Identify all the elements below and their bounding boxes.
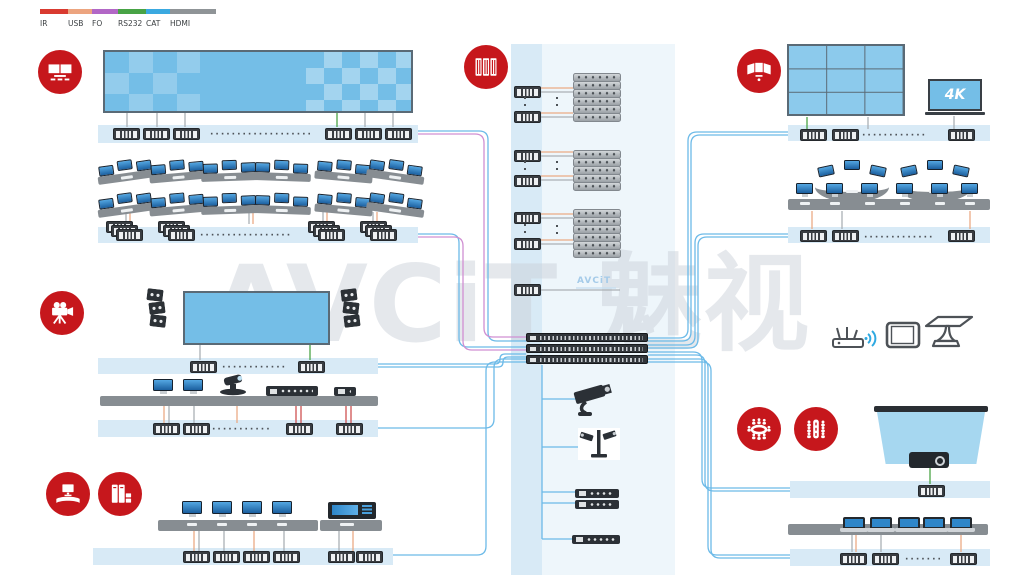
encoder-box (213, 551, 240, 563)
encoder-box (800, 230, 827, 242)
monitor (826, 183, 843, 200)
encoder-box (514, 212, 541, 224)
repeat-ellipsis: ············ (222, 363, 294, 373)
repeat-vdots (524, 161, 526, 173)
repeat-ellipsis: ············· (864, 233, 942, 243)
video-camera-icon (48, 299, 76, 327)
laptop (920, 517, 948, 534)
encoder-box (800, 129, 827, 141)
speaker-box (146, 288, 163, 302)
encoder-box (356, 551, 383, 563)
laptop (947, 517, 975, 534)
repeat-vdots (556, 225, 558, 237)
legend-label: CAT (146, 19, 170, 28)
legend-swatch (146, 9, 170, 14)
control-console (328, 502, 376, 519)
projection-screen-bar (874, 406, 988, 412)
tablet-icon (884, 320, 922, 354)
speaker-box (343, 314, 360, 328)
speaker-box (148, 301, 165, 315)
matrix-switcher (526, 355, 648, 364)
wire (393, 362, 526, 555)
monitor (117, 159, 133, 171)
encoder-box (286, 423, 313, 435)
legend-swatch (92, 9, 118, 14)
console-segment (150, 158, 206, 185)
operator-desk-icon (54, 480, 82, 508)
diagram-canvas: IRUSBFORS232CATHDMI AVCiT 魅视 AVCiT 4K (0, 0, 1025, 576)
curved-video-wall-badge (737, 49, 781, 93)
encoder-box (948, 129, 975, 141)
encoder-box (840, 553, 867, 565)
desk-chip (224, 208, 236, 211)
monitor (293, 163, 308, 174)
encoder-box (336, 423, 363, 435)
presentation-screen (183, 291, 330, 345)
monitor (293, 196, 308, 207)
legend-item: USB (68, 9, 92, 28)
legend-label: USB (68, 19, 92, 28)
console-segment (98, 189, 155, 218)
pole-camera-icon (578, 428, 620, 460)
monitor (117, 192, 133, 204)
operator-desk-badge (46, 472, 90, 516)
console-segment (255, 192, 310, 216)
monitor (961, 183, 978, 200)
repeat-ellipsis: ············ (862, 131, 934, 141)
console-segment (316, 191, 372, 218)
conference-table-badge (737, 407, 781, 451)
monitor (222, 160, 237, 171)
conference-host (266, 386, 318, 396)
encoder-box (173, 128, 200, 140)
encoder-stack-box (116, 229, 143, 241)
repeat-vdots (524, 224, 526, 236)
server-unit (573, 249, 621, 258)
encoder-box (832, 230, 859, 242)
legend-swatch (68, 9, 92, 14)
desk (788, 199, 990, 210)
video-recorder (575, 489, 619, 498)
console-segment (203, 192, 258, 216)
tv-4k-stand (925, 112, 985, 115)
monitor (336, 159, 352, 170)
video-wall-large (103, 50, 413, 113)
meeting-table-badge (794, 407, 838, 451)
wifi-router-icon (830, 324, 878, 356)
legend-label: FO (92, 19, 118, 28)
console-segment (203, 159, 258, 183)
repeat-ellipsis: ··················· (210, 130, 324, 140)
encoder-box (325, 128, 352, 140)
legend: IRUSBFORS232CATHDMI (40, 9, 216, 28)
cctv-camera-icon (570, 378, 624, 422)
tv-4k: 4K (928, 79, 982, 111)
video-recorder (575, 500, 619, 509)
encoder-box (143, 128, 170, 140)
projector-lens-icon (935, 456, 945, 466)
legend-label: RS232 (118, 19, 146, 28)
repeat-vdots (524, 97, 526, 109)
speaker-box (342, 301, 359, 315)
legend-item: RS232 (118, 9, 146, 28)
monitor (931, 183, 948, 200)
encoder-box (183, 551, 210, 563)
encoder-band (790, 481, 990, 498)
matrix-switcher (526, 344, 648, 353)
encoder-box (385, 128, 412, 140)
monitor (169, 192, 185, 203)
server-unit (573, 113, 621, 122)
encoder-box (514, 150, 541, 162)
encoder-box (190, 361, 217, 373)
legend-swatch (170, 9, 216, 14)
encoder-stack-box (168, 229, 195, 241)
legend-item: CAT (146, 9, 170, 28)
speaker-box (340, 288, 357, 302)
laptop (895, 517, 923, 534)
console-segment (368, 156, 425, 185)
encoder-box (328, 551, 355, 563)
video-wall-pattern-right (306, 52, 411, 111)
encoder-stack-box (370, 229, 397, 241)
legend-label: HDMI (170, 19, 216, 28)
monitor (796, 183, 813, 200)
encoder-box (153, 423, 180, 435)
repeat-vdots (556, 97, 558, 109)
monitor (927, 160, 943, 170)
encoder-box (514, 111, 541, 123)
network-switch (572, 535, 620, 544)
monitor (388, 159, 404, 171)
legend-item: HDMI (170, 9, 216, 28)
monitor (242, 501, 262, 520)
tv-4k-label: 4K (945, 87, 966, 103)
encoder-box (948, 230, 975, 242)
pc-towers-icon (106, 480, 134, 508)
console-segment (150, 191, 206, 218)
video-wall-3x3 (787, 44, 905, 116)
desk-chip (846, 190, 858, 193)
server-racks-badge (464, 45, 508, 89)
console-segment (255, 159, 310, 183)
legend-item: FO (92, 9, 118, 28)
desk-chip (277, 523, 287, 526)
projector (909, 452, 949, 468)
monitor (844, 160, 860, 170)
monitor (169, 159, 185, 170)
legend-swatch (118, 9, 146, 14)
monitor (203, 196, 218, 207)
desk-chip (935, 202, 945, 205)
device-shelf (100, 396, 378, 406)
monitor (255, 195, 270, 206)
matrix-switcher (526, 333, 648, 342)
encoder-box (298, 361, 325, 373)
console-segment (98, 156, 155, 185)
desk-chip (865, 202, 875, 205)
desk-chip (800, 202, 810, 205)
monitor (183, 379, 203, 397)
legend-swatch (40, 9, 68, 14)
pc-towers-badge (98, 472, 142, 516)
encoder-box (113, 128, 140, 140)
monitor (896, 183, 913, 200)
desk-chip (224, 175, 236, 178)
dome-camera (334, 387, 356, 396)
desk-chip (900, 202, 910, 205)
video-wall-badge (38, 50, 82, 94)
monitor (336, 192, 352, 203)
encoder-box (273, 551, 300, 563)
meeting-table-icon (802, 415, 830, 443)
monitor (272, 501, 292, 520)
encoder-stack-box (318, 229, 345, 241)
curved-video-wall-icon (745, 57, 773, 85)
console-segment (368, 189, 425, 218)
laptop (867, 517, 895, 534)
desk-chip (340, 523, 354, 526)
video-wall-pattern-left (105, 52, 200, 111)
desk-chip (187, 523, 197, 526)
encoder-box (355, 128, 382, 140)
monitor (212, 501, 232, 520)
monitor (388, 192, 404, 204)
repeat-ellipsis: ················· (200, 231, 302, 241)
video-camera-badge (40, 291, 84, 335)
desk-chip (830, 202, 840, 205)
encoder-box (872, 553, 899, 565)
desk (158, 520, 318, 531)
desk-chip (276, 208, 288, 211)
monitor (153, 379, 173, 397)
monitor (255, 162, 270, 173)
encoder-box (514, 86, 541, 98)
desk-chip (247, 523, 257, 526)
encoder-box (950, 553, 977, 565)
server-racks-icon (472, 53, 500, 81)
encoder-box (918, 485, 945, 497)
monitor (222, 193, 237, 204)
repeat-vdots (556, 161, 558, 173)
conference-table-icon (745, 415, 773, 443)
repeat-ellipsis: ······· (905, 555, 947, 565)
encoder-box (514, 175, 541, 187)
monitor (274, 193, 289, 204)
center-logo: AVCiT (577, 276, 611, 286)
video-wall-icon (46, 58, 74, 86)
pole-camera-station (578, 428, 620, 460)
encoder-box (183, 423, 210, 435)
encoder-box (832, 129, 859, 141)
pedestal-table-icon (922, 314, 976, 356)
laptop (840, 517, 868, 534)
console-segment (316, 158, 372, 185)
speaker-box (149, 314, 166, 328)
monitor (203, 163, 218, 174)
legend-item: IR (40, 9, 68, 28)
repeat-ellipsis: ··········· (212, 425, 278, 435)
server-unit (573, 182, 621, 191)
legend-label: IR (40, 19, 68, 28)
desk-chip (965, 202, 975, 205)
monitor (274, 160, 289, 171)
monitor (861, 183, 878, 200)
encoder-box (514, 238, 541, 250)
desk-chip (276, 175, 288, 178)
desk-chip (217, 523, 227, 526)
encoder-box (243, 551, 270, 563)
encoder-box (514, 284, 541, 296)
monitor (182, 501, 202, 520)
